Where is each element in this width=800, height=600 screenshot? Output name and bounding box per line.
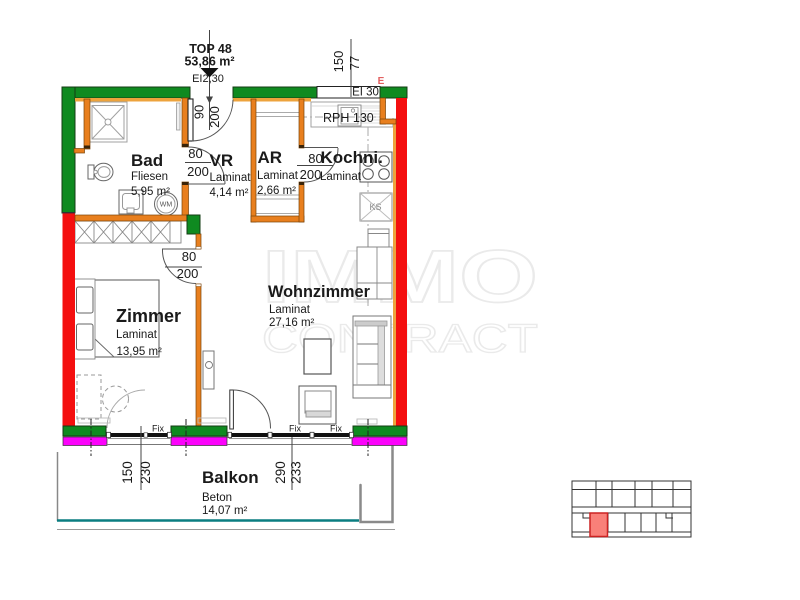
svg-text:Laminat: Laminat bbox=[210, 172, 252, 184]
svg-text:VR: VR bbox=[210, 151, 234, 170]
svg-text:Laminat: Laminat bbox=[116, 329, 158, 341]
svg-text:150: 150 bbox=[331, 51, 346, 73]
svg-text:Wohnzimmer: Wohnzimmer bbox=[268, 283, 371, 301]
svg-text:WM: WM bbox=[160, 202, 173, 209]
svg-text:RPH 130: RPH 130 bbox=[323, 111, 374, 125]
svg-text:AR: AR bbox=[258, 148, 283, 167]
svg-text:233: 233 bbox=[289, 461, 304, 484]
svg-text:80: 80 bbox=[182, 249, 196, 264]
svg-text:EI2,30: EI2,30 bbox=[192, 73, 224, 85]
svg-text:KS: KS bbox=[369, 202, 381, 212]
svg-text:Zimmer: Zimmer bbox=[116, 306, 181, 326]
svg-text:230: 230 bbox=[138, 461, 153, 484]
svg-text:Fix: Fix bbox=[152, 424, 164, 434]
svg-text:200: 200 bbox=[177, 266, 199, 281]
svg-text:Laminat: Laminat bbox=[269, 304, 311, 316]
svg-text:Laminat: Laminat bbox=[257, 170, 299, 182]
svg-text:Balkon: Balkon bbox=[202, 468, 259, 487]
svg-text:E: E bbox=[378, 76, 385, 87]
svg-text:Kochni.: Kochni. bbox=[321, 148, 383, 167]
svg-text:5,95 m²: 5,95 m² bbox=[131, 186, 170, 198]
svg-text:53,86 m²: 53,86 m² bbox=[184, 55, 234, 69]
svg-text:Beton: Beton bbox=[202, 492, 232, 504]
svg-text:Laminat: Laminat bbox=[320, 171, 362, 183]
svg-text:EI 30: EI 30 bbox=[352, 87, 379, 99]
svg-text:Fix: Fix bbox=[289, 424, 301, 434]
svg-text:Fix: Fix bbox=[330, 424, 342, 434]
svg-text:200: 200 bbox=[300, 167, 322, 182]
svg-text:80: 80 bbox=[308, 151, 322, 166]
svg-text:Fliesen: Fliesen bbox=[131, 171, 168, 183]
svg-text:90: 90 bbox=[192, 105, 207, 119]
svg-text:13,95 m²: 13,95 m² bbox=[117, 346, 163, 358]
svg-text:150: 150 bbox=[120, 461, 135, 484]
svg-text:Bad: Bad bbox=[131, 151, 163, 170]
svg-text:77: 77 bbox=[347, 56, 362, 70]
svg-text:4,14 m²: 4,14 m² bbox=[210, 187, 249, 199]
svg-text:14,07 m²: 14,07 m² bbox=[202, 505, 248, 517]
svg-text:27,16 m²: 27,16 m² bbox=[269, 317, 315, 329]
svg-text:200: 200 bbox=[187, 164, 209, 179]
svg-text:200: 200 bbox=[207, 106, 222, 128]
svg-text:290: 290 bbox=[273, 461, 288, 484]
svg-text:80: 80 bbox=[188, 146, 202, 161]
svg-text:2,66 m²: 2,66 m² bbox=[257, 185, 296, 197]
